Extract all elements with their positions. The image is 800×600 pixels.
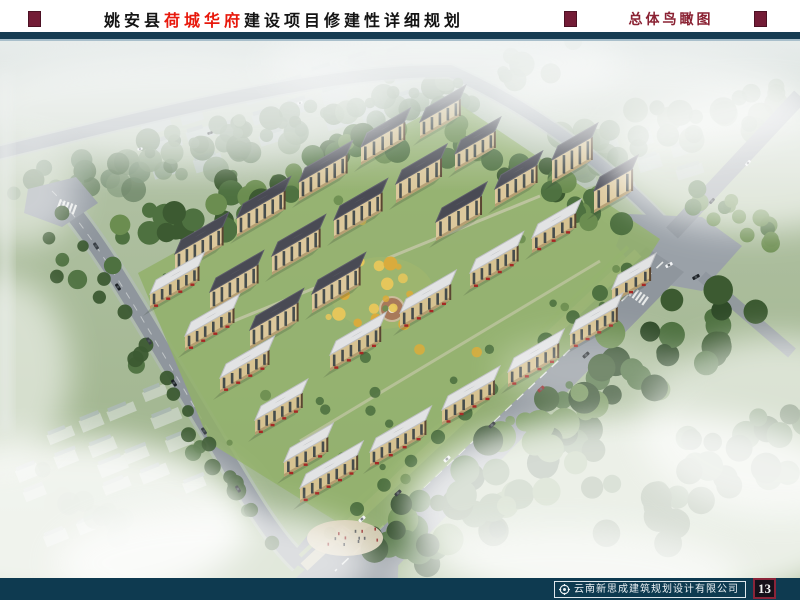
section-label: 总体鸟瞰图 bbox=[596, 9, 746, 29]
title-prefix: 姚安县 bbox=[104, 13, 164, 30]
presentation-board: 姚安县荷城华府建设项目修建性详细规划 总体鸟瞰图 云南新思成建筑规划设计有限公司… bbox=[0, 0, 800, 600]
company-box: 云南新思成建筑规划设计有限公司 bbox=[554, 581, 746, 598]
board-footer: 云南新思成建筑规划设计有限公司 13 bbox=[0, 578, 800, 600]
title-highlight: 荷城华府 bbox=[164, 13, 244, 30]
page-title: 姚安县荷城华府建设项目修建性详细规划 bbox=[104, 7, 464, 31]
board-header: 姚安县荷城华府建设项目修建性详细规划 总体鸟瞰图 bbox=[0, 0, 800, 32]
header-rule bbox=[0, 32, 800, 39]
page-number: 13 bbox=[753, 578, 776, 599]
title-suffix: 建设项目修建性详细规划 bbox=[244, 13, 464, 30]
header-marker-left bbox=[28, 11, 41, 27]
header-marker-right bbox=[754, 11, 767, 27]
company-name: 云南新思成建筑规划设计有限公司 bbox=[574, 582, 739, 597]
aerial-rendering-svg bbox=[0, 41, 800, 578]
header-marker-middle bbox=[564, 11, 577, 27]
compass-icon bbox=[559, 584, 570, 595]
aerial-view bbox=[0, 41, 800, 578]
